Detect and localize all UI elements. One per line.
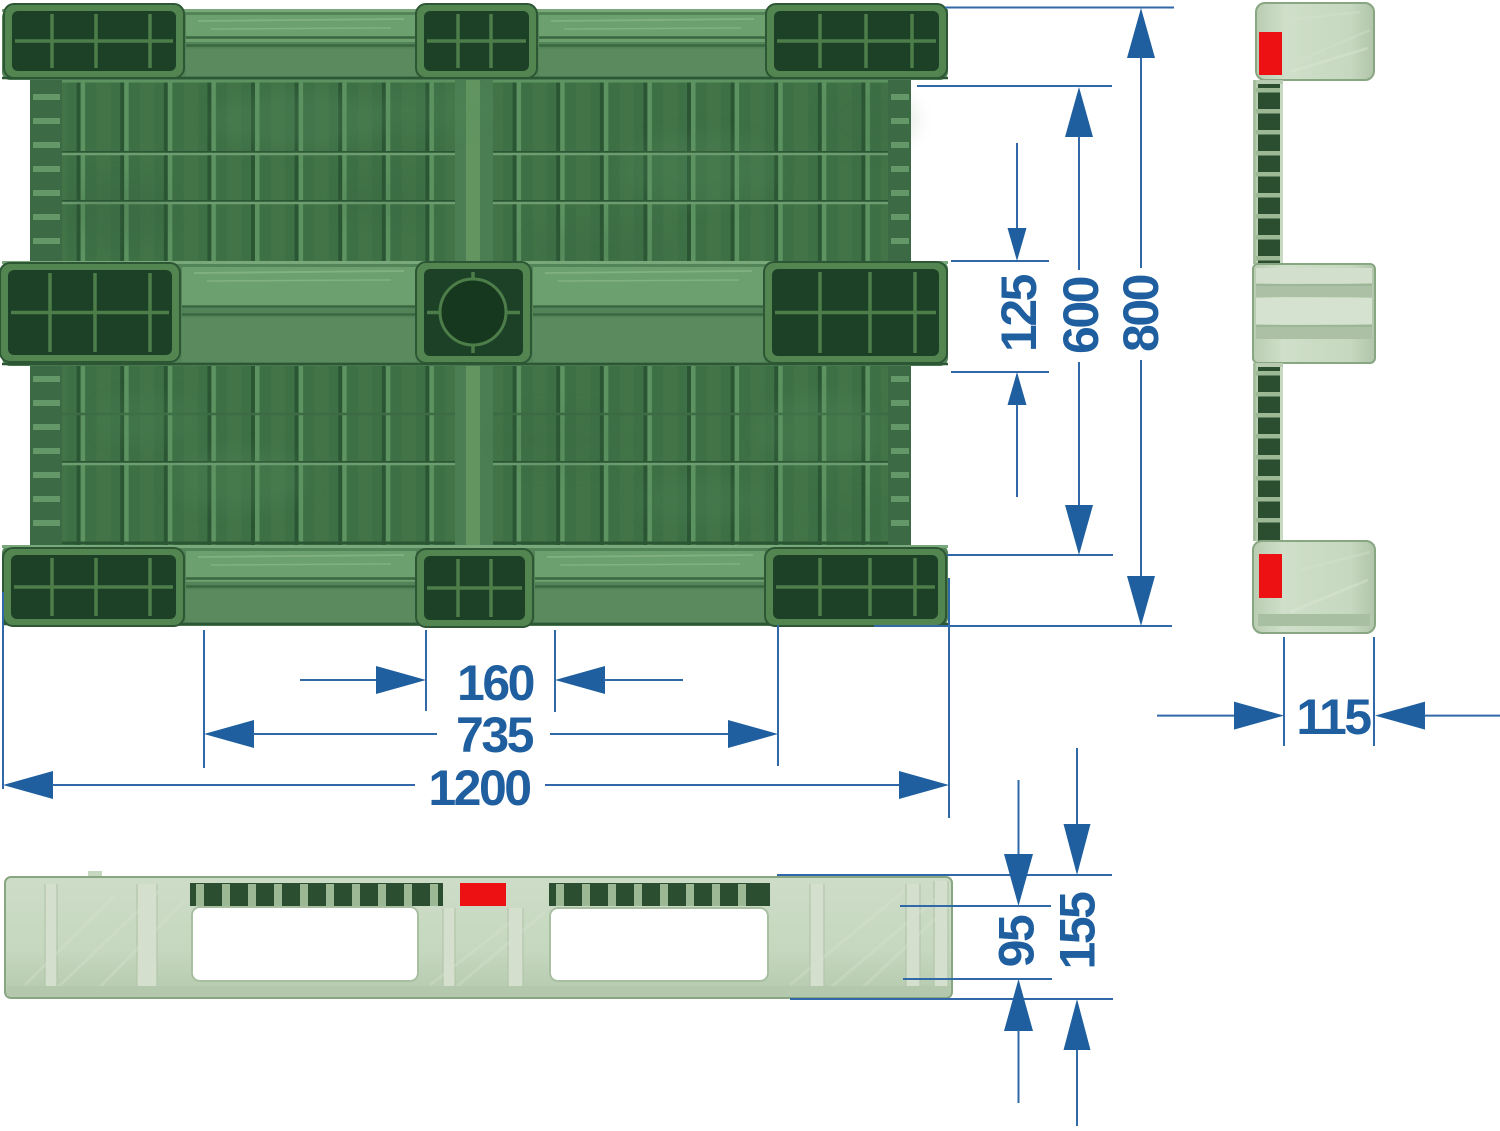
svg-text:115: 115 (1296, 689, 1371, 745)
svg-text:735: 735 (456, 707, 534, 763)
svg-text:125: 125 (991, 274, 1047, 352)
svg-text:95: 95 (989, 915, 1045, 967)
svg-text:800: 800 (1113, 275, 1169, 352)
svg-text:155: 155 (1050, 892, 1106, 970)
svg-text:1200: 1200 (428, 760, 530, 816)
svg-text:600: 600 (1053, 277, 1109, 354)
svg-text:160: 160 (457, 655, 534, 711)
